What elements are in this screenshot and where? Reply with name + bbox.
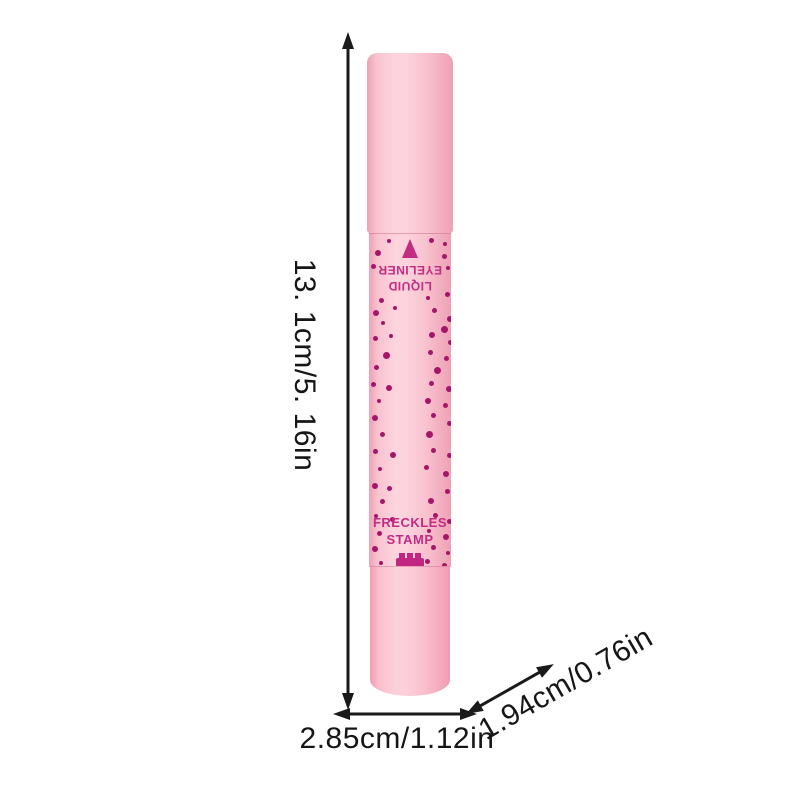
stamp-icon-teeth — [396, 553, 424, 558]
freckle-dot — [445, 489, 450, 494]
freckle-dot — [447, 453, 451, 458]
freckle-dot — [373, 449, 378, 454]
width-arrow — [333, 708, 477, 720]
freckle-dot — [387, 486, 392, 491]
pen-lower-barrel — [370, 566, 450, 696]
freckle-dot — [373, 310, 379, 316]
freckle-dot — [444, 356, 449, 361]
freckle-dot — [377, 399, 381, 403]
liquid-text: LIQUID — [388, 278, 432, 293]
height-arrow — [342, 32, 354, 710]
freckle-dot — [372, 483, 378, 489]
freckle-dot — [431, 413, 436, 418]
stamp-text: STAMP — [369, 531, 451, 548]
freckle-dot — [429, 332, 435, 338]
freckle-dot — [424, 465, 429, 470]
freckle-dot — [425, 398, 431, 404]
freckle-dot — [390, 452, 396, 458]
pen-body: LIQUID EYELINER FRECKLES STAMP — [369, 233, 451, 567]
freckle-dot — [447, 316, 451, 322]
freckle-stamp-pen: LIQUID EYELINER FRECKLES STAMP — [367, 53, 453, 695]
liquid-eyeliner-label: LIQUID EYELINER — [369, 239, 451, 293]
freckle-dot — [380, 432, 385, 437]
freckle-dot — [389, 334, 393, 338]
freckle-dot — [443, 471, 449, 477]
freckle-dot — [373, 336, 378, 341]
height-dimension-label: 13. 1cm/5. 16in — [284, 235, 324, 495]
pen-cap — [367, 53, 453, 233]
freckle-dot — [381, 321, 385, 325]
freckle-dot — [393, 306, 397, 310]
eyeliner-tip-icon — [402, 239, 418, 258]
freckle-dot — [428, 350, 433, 355]
freckle-dot — [380, 499, 385, 504]
stamp-icon — [396, 553, 424, 567]
freckle-dot — [448, 340, 451, 345]
freckle-dot — [379, 298, 384, 303]
freckle-dot — [434, 367, 441, 374]
freckle-dot — [371, 382, 376, 387]
freckle-dot — [432, 308, 437, 313]
eyeliner-text: EYELINER — [378, 262, 442, 277]
freckle-dot — [378, 467, 382, 471]
freckle-dot — [374, 365, 379, 370]
freckle-dot — [383, 352, 390, 359]
freckles-text: FRECKLES — [369, 514, 451, 531]
freckle-dot — [429, 381, 434, 386]
freckle-dot — [441, 326, 448, 333]
freckles-stamp-label: FRECKLES STAMP — [369, 514, 451, 567]
freckle-dot — [428, 498, 434, 504]
freckle-dot — [443, 403, 448, 408]
freckle-dot — [426, 431, 433, 438]
freckle-dot — [446, 386, 451, 392]
freckle-dot — [431, 448, 436, 453]
freckle-dot — [426, 296, 430, 300]
product-dimension-diagram: 13. 1cm/5. 16in 2.85cm/1.12in 1.94cm/0.7… — [0, 0, 800, 800]
freckle-dot — [447, 421, 451, 426]
freckle-dot — [372, 415, 378, 421]
freckle-dot — [386, 385, 392, 391]
